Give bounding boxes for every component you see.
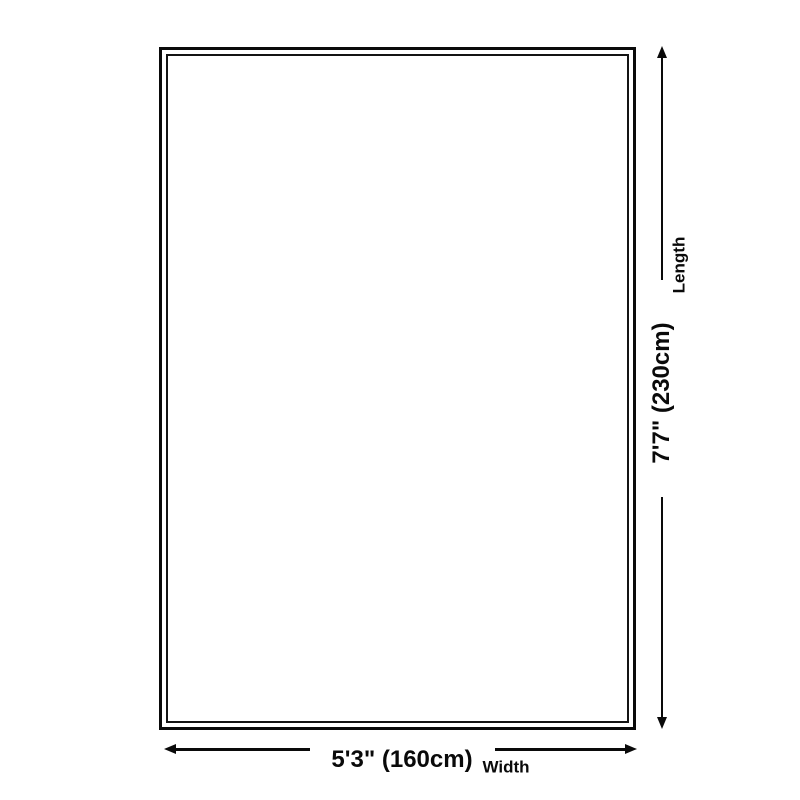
rug-rectangle — [159, 47, 636, 730]
width-dimension-line-right — [495, 748, 626, 751]
length-dimension-line-lower — [661, 497, 664, 717]
length-label: Length — [671, 237, 688, 294]
length-dimension-line-upper — [661, 56, 664, 280]
rug-size-diagram: Length 7'7" (230cm) 5'3" (160cm) Width — [0, 0, 800, 800]
rug-inner-border — [166, 54, 629, 723]
length-value: 7'7" (230cm) — [650, 322, 674, 463]
width-label: Width — [482, 759, 529, 776]
width-value: 5'3" (160cm) — [331, 748, 472, 772]
width-dimension-line-left — [175, 748, 310, 751]
length-arrowhead-down-icon — [657, 717, 667, 729]
width-arrowhead-right-icon — [625, 744, 637, 754]
